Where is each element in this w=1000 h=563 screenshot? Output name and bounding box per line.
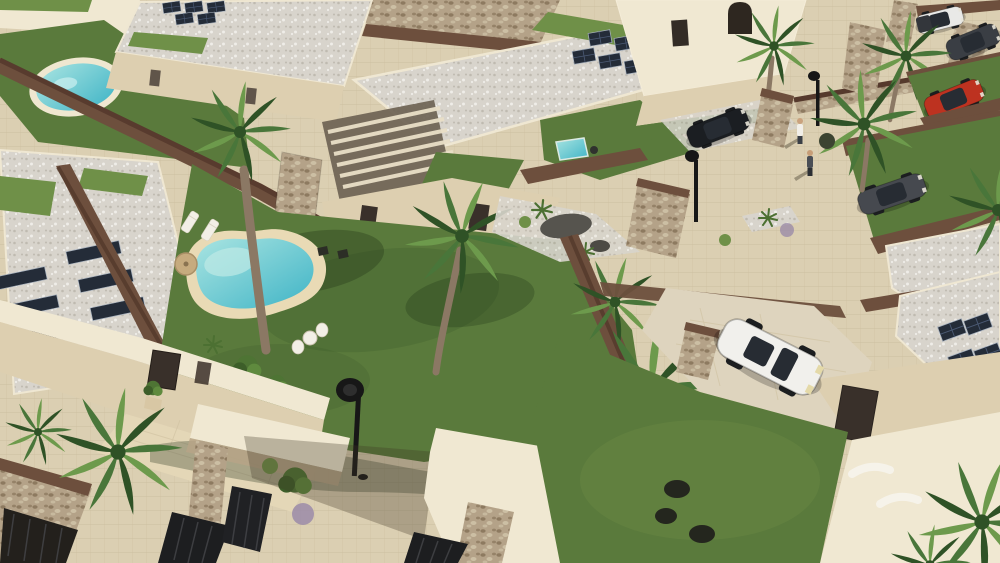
render-scene: Aerial 3D architectural rendering of a m… bbox=[0, 0, 1000, 563]
lawn-pouf bbox=[689, 525, 715, 543]
plunge-pool bbox=[556, 138, 588, 160]
lavender-plant bbox=[292, 503, 314, 525]
lawn-pouf bbox=[655, 508, 677, 524]
architectural-render: Aerial 3D architectural rendering of a m… bbox=[0, 0, 1000, 563]
window-dark bbox=[245, 88, 257, 105]
garden-grill bbox=[590, 146, 598, 154]
street-bush bbox=[819, 133, 835, 149]
window-dark bbox=[149, 70, 161, 87]
window-dark bbox=[671, 19, 689, 46]
lawn-pouf bbox=[664, 480, 690, 498]
green-roof-patch bbox=[0, 176, 56, 216]
arched-doorway bbox=[728, 2, 752, 34]
straw-parasol bbox=[175, 253, 197, 275]
